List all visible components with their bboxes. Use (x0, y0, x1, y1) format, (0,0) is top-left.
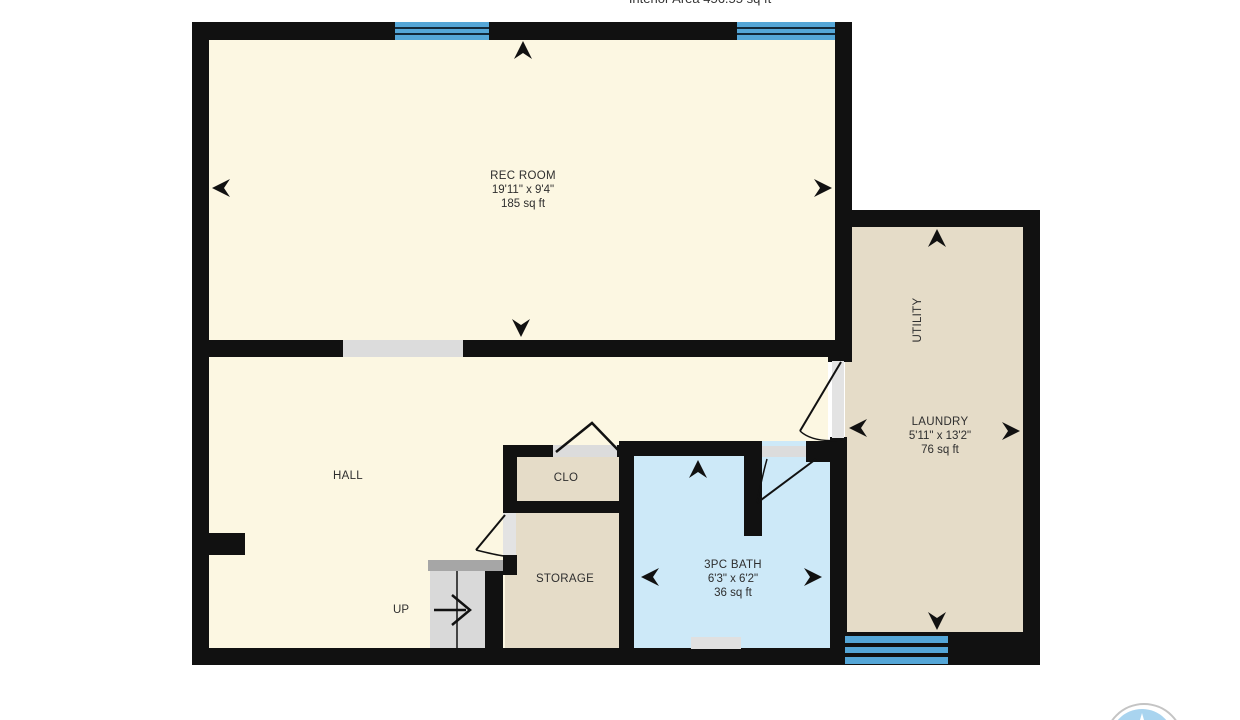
hall-label: HALL (333, 469, 363, 483)
wall-laundry-right (1023, 210, 1040, 665)
wall-bath-top-left (634, 441, 762, 456)
wall-corner-rec-laundry (828, 340, 852, 362)
storage-label: STORAGE (536, 572, 594, 586)
bath-bottom-fixture (691, 637, 741, 649)
wall-clo-top-right (617, 445, 634, 457)
wall-laundry-left-lower (830, 437, 847, 650)
wall-bath-hinge-block (806, 441, 830, 462)
utility-label: UTILITY (911, 298, 925, 343)
wall-stairs-right (485, 562, 503, 648)
compass-logo-icon (1104, 703, 1184, 720)
wall-clo-top-left (503, 445, 553, 457)
stairs-tread-divider (456, 571, 458, 648)
wall-hall-stub (209, 533, 245, 555)
clo-label: CLO (554, 471, 579, 485)
wall-bath-partition (744, 456, 762, 536)
wall-top-mid (489, 22, 737, 40)
rec-hall-opening (343, 340, 463, 357)
window-rec-right (737, 22, 835, 40)
wall-rec-hall-left (209, 340, 343, 357)
wall-bath-left (619, 441, 634, 648)
wall-bottom-main (192, 648, 852, 665)
bath-door-opening (762, 446, 806, 457)
laundry-door-leaf (832, 361, 844, 438)
window-laundry-bottom (845, 636, 948, 664)
bath-label: 3PC BATH 6'3" x 6'2" 36 sq ft (704, 558, 762, 600)
wall-rec-hall-right (463, 340, 835, 357)
laundry-label: LAUNDRY 5'11" x 13'2" 76 sq ft (909, 415, 971, 457)
stairs-up-label: UP (393, 603, 409, 617)
wall-laundry-top (852, 210, 1040, 227)
stairs-header (428, 560, 503, 571)
wall-left-exterior (192, 22, 209, 665)
wall-top-left (192, 22, 397, 40)
interior-area-label: Interior Area 456.55 sq ft (560, 0, 840, 6)
window-rec-left (395, 22, 489, 40)
wall-rec-right (835, 22, 852, 362)
rec-room-label: REC ROOM 19'11" x 9'4" 185 sq ft (490, 169, 556, 211)
wall-storage-left-block (503, 555, 517, 575)
wall-clo-storage (503, 501, 629, 513)
clo-door-opening (553, 445, 617, 457)
storage-door-leaf (503, 513, 516, 555)
floor-plan: Interior Area 456.55 sq ft (0, 0, 1240, 720)
bath-floor (634, 441, 830, 648)
